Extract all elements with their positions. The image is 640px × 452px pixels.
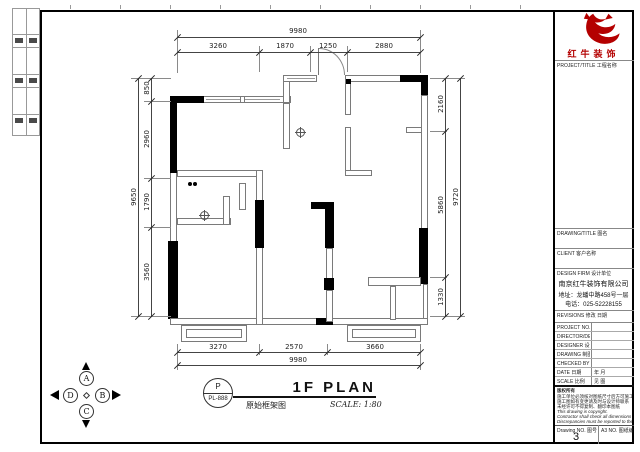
dim-line <box>138 78 139 317</box>
left-strip-line <box>12 47 40 48</box>
datum-symbol <box>200 211 209 220</box>
wall <box>239 183 246 210</box>
dim-label: 9650 <box>130 188 138 206</box>
wall <box>177 170 258 177</box>
dim-label: 3660 <box>366 343 384 351</box>
black-wall <box>325 202 334 248</box>
wall <box>345 80 351 115</box>
plan-title: 1F PLAN <box>250 379 376 396</box>
section-design-firm: DESIGN FIRM 设计单位 <box>557 270 631 277</box>
dim-label: 2960 <box>143 130 151 148</box>
compass-b: B <box>95 388 110 403</box>
black-wall <box>421 82 428 95</box>
tb-line <box>555 268 634 269</box>
dim-line <box>177 37 421 38</box>
plan-scale: SCALE: 1:80 <box>330 400 382 409</box>
tb-line <box>555 349 634 350</box>
section-project-title: PROJECT/TITLE 工程名称 <box>557 62 631 69</box>
tb-line <box>555 425 634 426</box>
bay-window <box>352 329 416 338</box>
compass-arrow-left <box>50 390 59 400</box>
left-strip-line <box>12 114 40 115</box>
info-row-label: CHECKED BY 审核人 <box>557 360 590 367</box>
dim-label: 9980 <box>289 27 307 35</box>
tb-line <box>555 248 634 249</box>
plan-subtitle: 原始框架图 <box>246 400 286 411</box>
dim-label: 9980 <box>289 356 307 364</box>
black-wall <box>255 200 264 248</box>
wall <box>390 286 396 320</box>
tb-line <box>555 60 634 61</box>
dim-label: 1330 <box>437 288 445 306</box>
ruler-tick <box>520 5 521 9</box>
tiny-text-mark <box>15 38 23 43</box>
wall <box>240 96 245 103</box>
ruler-tick <box>320 5 321 9</box>
extension-line <box>144 227 171 228</box>
info-row-value: 见 图 <box>594 378 632 385</box>
info-row-label: DRAWING 制图人 <box>557 351 590 358</box>
tb-line-heavy <box>555 385 634 387</box>
dim-label: 1870 <box>276 42 294 50</box>
tb-line <box>555 358 634 359</box>
ruler-tick <box>420 5 421 9</box>
black-wall <box>170 96 204 103</box>
dim-label: 2160 <box>437 95 445 113</box>
dim-label: 5860 <box>437 196 445 214</box>
tiny-text-mark <box>15 118 23 123</box>
tb-line <box>555 376 634 377</box>
ruler-tick <box>170 5 171 9</box>
compass-arrow-up <box>82 362 90 370</box>
left-strip-divider <box>26 8 27 136</box>
window-sill <box>368 277 421 286</box>
dim-label: 3260 <box>209 42 227 50</box>
black-wall <box>324 278 334 290</box>
info-row-label: DIRECTOR/DESI 设计总监 <box>557 333 590 340</box>
tb-line <box>555 340 634 341</box>
dim-line <box>177 52 421 53</box>
title-block-border <box>553 10 555 444</box>
tiny-text-mark <box>29 118 37 123</box>
black-wall <box>168 241 178 319</box>
dim-label: 3270 <box>209 343 227 351</box>
wall <box>421 95 428 229</box>
sheet-size-label: A3 NO. 图纸编号 <box>601 427 633 434</box>
extension-line <box>144 101 171 102</box>
dim-line <box>460 78 461 317</box>
wall <box>345 170 372 176</box>
dim-label: 1250 <box>319 42 337 50</box>
note-line: Discrepancies must be reported to the de… <box>557 419 632 425</box>
dim-line <box>177 365 421 366</box>
black-wall <box>346 79 351 84</box>
dim-label: 1790 <box>143 193 151 211</box>
bay-window <box>186 329 242 338</box>
dim-label: 9720 <box>452 188 460 206</box>
plan-dot <box>193 182 197 186</box>
tiny-text-mark <box>29 38 37 43</box>
ruler-tick <box>220 5 221 9</box>
black-wall <box>400 75 428 82</box>
compass-a: A <box>79 371 94 386</box>
dim-line <box>445 78 446 317</box>
compass-c: C <box>79 404 94 419</box>
wall <box>283 103 290 149</box>
company-phone: 电话：025-52228155 <box>553 299 634 308</box>
dim-label: 850 <box>143 81 151 94</box>
tb-line <box>555 322 634 323</box>
left-strip-line <box>12 34 40 35</box>
dim-line <box>151 78 152 317</box>
black-wall <box>419 228 428 284</box>
tiny-text-mark <box>15 78 23 83</box>
dim-line <box>177 352 421 353</box>
tb-line <box>555 331 634 332</box>
notes-title: 版权所有 <box>557 388 632 394</box>
dim-label: 2880 <box>375 42 393 50</box>
title-underline <box>233 396 376 398</box>
extension-line <box>144 178 171 179</box>
info-row-label: DESIGNER 设计师 <box>557 342 590 349</box>
compass-arrow-right <box>112 390 121 400</box>
brand-name: 红牛装饰 <box>553 47 634 60</box>
wall <box>326 290 333 322</box>
company-address: 地址：龙蟠中路458号一层 <box>553 290 634 299</box>
drawing-tag-letter: P <box>203 382 233 391</box>
ruler-tick <box>120 5 121 9</box>
info-row-label: PROJECT NO. 项目编号 <box>557 324 590 331</box>
info-row-value: 年 月 <box>594 369 632 376</box>
wall <box>345 127 351 176</box>
section-revisions: REVISIONS 修改 日期 <box>557 312 631 319</box>
tb-line <box>555 367 634 368</box>
ruler-tick <box>470 5 471 9</box>
drawing-tag-divider <box>203 393 233 394</box>
ruler-tick <box>70 5 71 9</box>
section-client: CLIENT 客户名称 <box>557 250 631 257</box>
compass-arrow-down <box>82 420 90 428</box>
info-row-label: DATE 日期 <box>557 369 590 376</box>
drawing-sheet: 9980 3260 1870 1250 2880 3270 2570 3660 … <box>0 0 640 452</box>
company-name: 南京红牛装饰有限公司 <box>553 279 634 289</box>
plan-dot <box>188 182 192 186</box>
compass-d: D <box>63 388 78 403</box>
tiny-text-mark <box>29 78 37 83</box>
tb-line <box>555 310 634 311</box>
ruler-tick <box>370 5 371 9</box>
drawing-tag-number: PL-888 <box>201 396 235 402</box>
tb-line <box>555 228 634 229</box>
info-row-label: SCALE 比例 <box>557 378 590 385</box>
datum-symbol <box>296 128 305 137</box>
wall <box>223 196 230 225</box>
left-strip-line <box>12 74 40 75</box>
dim-label: 2570 <box>285 343 303 351</box>
dim-label: 3560 <box>143 263 151 281</box>
window <box>287 78 315 79</box>
wall <box>326 248 333 280</box>
left-strip-line <box>12 87 40 88</box>
ruler-tick <box>270 5 271 9</box>
section-drawing-title: DRAWING/TITLE 图名 <box>557 230 631 237</box>
brand-logo-bull-icon <box>574 12 626 46</box>
drawing-no-value: 3 <box>557 431 595 443</box>
tb-bottom-divider <box>598 425 599 444</box>
wall <box>406 127 422 133</box>
black-wall <box>170 103 177 173</box>
